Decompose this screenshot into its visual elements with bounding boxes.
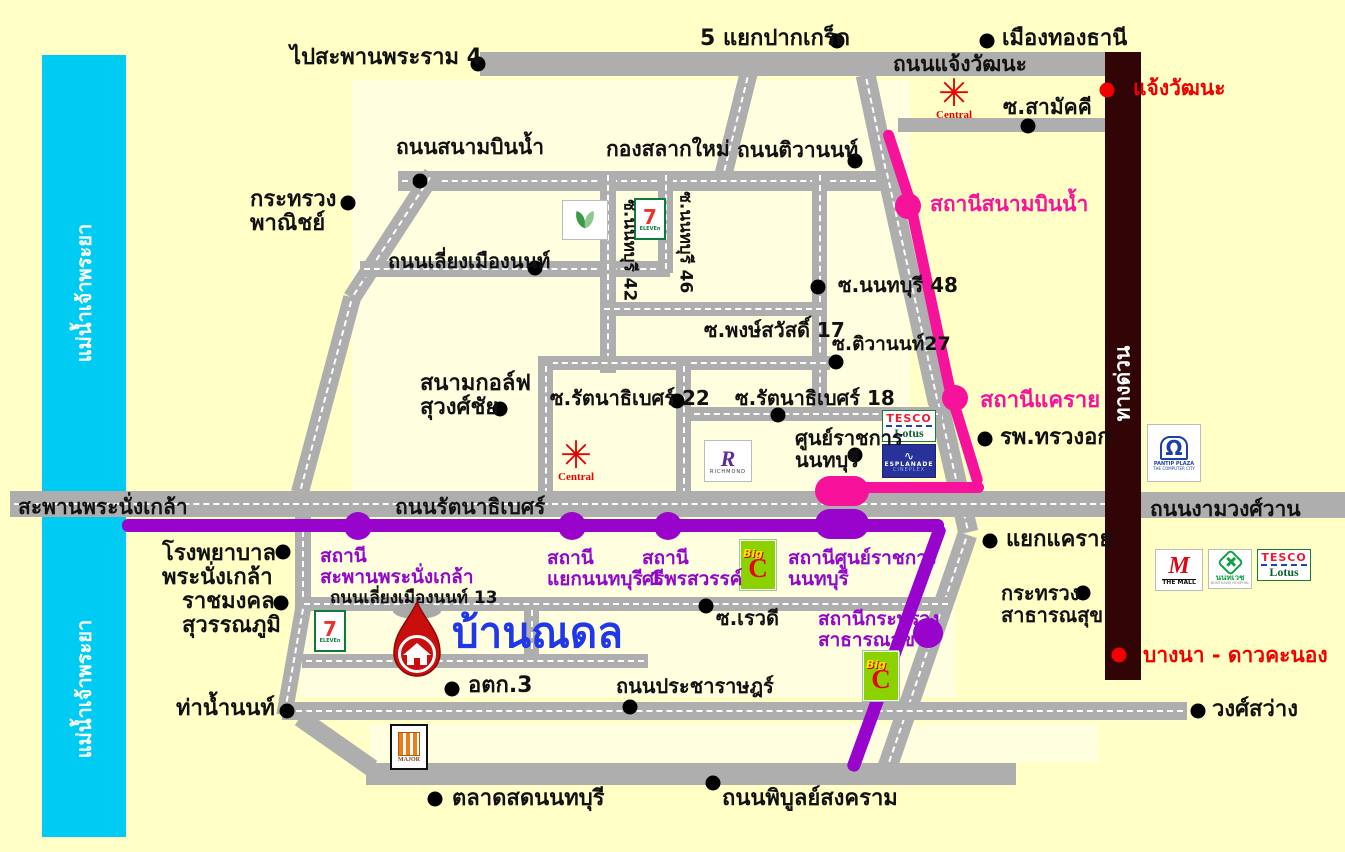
label-expressway: ทางด่วน xyxy=(1111,294,1134,474)
label-station-si-phonsawan: สถานี ศรีพรสวรรค์ xyxy=(642,548,742,590)
label-road-liangmueangnon: ถนนเลี่ยงเมืองนนท์ xyxy=(388,250,550,272)
label-road-tiwanon: ถนนติวานนท์ xyxy=(737,139,858,162)
logo-text: Central xyxy=(558,472,594,483)
poi-dot xyxy=(983,534,998,549)
road-mid-vertical-1 xyxy=(538,362,553,498)
logo-text: THE MALL xyxy=(1162,579,1196,586)
label-soi-phongsawat-17: ซ.พงษ์สวัสดิ์ 17 xyxy=(704,319,845,341)
station-khaerai xyxy=(942,385,968,411)
station-si-phonsawan xyxy=(654,512,682,540)
logo-central-icon: ✳Central xyxy=(936,76,972,121)
poi-dot xyxy=(829,355,844,370)
road-mid-vertical-2 xyxy=(676,362,691,498)
poi-dot xyxy=(413,174,428,189)
logo-text: 7 xyxy=(323,619,337,639)
logo-text: ELEVEn xyxy=(320,639,341,644)
road-centerline xyxy=(545,366,547,494)
logo-text: Lotus xyxy=(1269,566,1298,578)
logo-tesco-icon: TESCOLotus xyxy=(1257,549,1311,581)
label-chest-hospital: รพ.ทรวงอก xyxy=(1000,426,1111,450)
label-station-sanambinnam: สถานีสนามบินน้ำ xyxy=(930,193,1088,216)
logo-text: 7 xyxy=(643,207,657,227)
logo-text: Central xyxy=(936,110,972,121)
logo-text: C xyxy=(871,666,891,693)
label-soi-tiwanon-27: ซ.ติวานนท์27 xyxy=(832,334,951,355)
logo-text: C xyxy=(748,555,768,582)
logo-major-icon: MAJOR xyxy=(390,724,428,770)
road-phibun-curve xyxy=(295,710,377,775)
label-health-ministry: กระทรวง สาธารณสุข xyxy=(1001,582,1103,626)
road-soi-samakkhi xyxy=(898,118,1110,132)
logo-text: TESCO xyxy=(1261,552,1306,566)
poi-dot xyxy=(811,280,826,295)
logo-bigc-icon: BigC xyxy=(740,540,776,590)
label-station-health-ministry: สถานีกระทรวง สาธารณสุข xyxy=(818,609,939,651)
label-road-ngamwongwan: ถนนงามวงศ์วาน xyxy=(1150,498,1301,521)
logo-pantip-icon: ΩPANTIP PLAZATHE COMPUTER CITY xyxy=(1147,424,1201,482)
label-wongsawang: วงศ์สว่าง xyxy=(1212,698,1298,722)
label-chao-phraya-river-upper: แม่น้ำเจ้าพระยา xyxy=(73,203,95,383)
logo-text xyxy=(398,732,420,756)
label-road-phibunsongkhram: ถนนพิบูลย์สงคราม xyxy=(722,787,898,811)
logo-text: Ω xyxy=(1160,436,1187,460)
label-exit-changwattana: แจ้งวัฒนะ xyxy=(1133,77,1226,100)
logo-text: M xyxy=(1168,554,1189,578)
label-phranangklao-bridge: สะพานพระนั่งเกล้า xyxy=(18,496,188,519)
logo-text: TESCO xyxy=(886,413,931,427)
label-otk-3: อตก.3 xyxy=(468,674,533,698)
poi-dot xyxy=(623,700,638,715)
road-centerline xyxy=(286,710,1183,712)
label-baan-nadol: บ้านณดล xyxy=(452,610,623,656)
label-mueang-thong-thani: เมืองทองธานี xyxy=(1002,27,1127,51)
logo-text: THE COMPUTER CITY xyxy=(1153,467,1195,471)
label-golf-course: สนามกอล์ฟ สุวงศ์ชัย xyxy=(420,372,531,420)
terminal-pink-sunratchakan xyxy=(815,476,869,506)
label-road-pracharat: ถนนประชาราษฎร์ xyxy=(616,675,774,697)
label-exit-bangna-daokhanong: บางนา - ดาวคะนอง xyxy=(1143,644,1328,667)
label-pak-kret-junction: 5 แยกปากเกร็ด xyxy=(700,27,850,51)
label-road-sanambinnam: ถนนสนามบินน้ำ xyxy=(396,136,544,159)
poi-dot xyxy=(1191,704,1206,719)
poi-dot xyxy=(699,599,714,614)
road-centerline xyxy=(302,521,304,607)
station-saphan-phranangklao xyxy=(344,512,372,540)
logo-text: ✳ xyxy=(560,438,592,472)
label-road-rattanathibet: ถนนรัตนาธิเบศร์ xyxy=(395,496,545,519)
logo-nonthavej-icon: ✚นนทเวชNONTHAVEJ HOSPITAL xyxy=(1208,549,1252,589)
house-pin xyxy=(386,600,448,692)
map-canvas: ✳Central✳Central7ELEVEn7ELEVEnTESCOLotus… xyxy=(0,0,1345,852)
poi-dot xyxy=(276,545,291,560)
label-soi-nonthaburi-46: ซ.นนทบุรี 46 xyxy=(676,152,695,332)
house-pin-icon xyxy=(386,600,448,688)
road-centerline xyxy=(300,301,352,489)
label-tha-nam-non: ท่าน้ำนนท์ xyxy=(176,697,275,721)
logo-central-icon: ✳Central xyxy=(558,438,594,483)
road-phibunsongkhram xyxy=(366,763,1016,785)
poi-dot xyxy=(280,704,295,719)
poi-dot xyxy=(980,34,995,49)
label-commerce-ministry: กระทรวง พาณิชย์ xyxy=(250,188,336,236)
label-soi-nonthaburi-42: ซ.นนทบุรี 42 xyxy=(620,160,639,340)
label-kong-salak-mai: กองสลากใหม่ xyxy=(606,138,730,161)
logo-richmond-icon: RRICHMOND xyxy=(704,440,752,482)
label-soi-rattanathibet-22: ซ.รัตนาธิเบศร์ 22 xyxy=(550,387,710,409)
label-phranangklao-hospital: โรงพยาบาล พระนั่งเกล้า xyxy=(162,542,276,590)
label-yaek-khaerai: แยกแคราย xyxy=(1006,528,1112,552)
label-soi-samakkhi: ซ.สามัคคี xyxy=(1003,96,1092,119)
expressway-exit-dot xyxy=(1112,648,1127,663)
city-block xyxy=(370,724,1098,762)
station-sanambinnam xyxy=(895,193,921,219)
logo-text: NONTHAVEJ HOSPITAL xyxy=(1211,582,1250,586)
label-station-khaerai: สถานีแคราย xyxy=(980,389,1100,413)
label-gov-center-nonthaburi: ศูนย์ราชการ นนทบุรี xyxy=(795,427,903,471)
label-station-saphan-phranangklao: สถานี สะพานพระนั่งเกล้า xyxy=(320,546,474,588)
poi-dot xyxy=(1021,119,1036,134)
label-station-sunratchakan: สถานีศูนย์ราชการ นนทบุรี xyxy=(788,548,937,590)
logo-text: R xyxy=(721,448,736,470)
logo-leaf-icon xyxy=(562,200,608,240)
road-centerline xyxy=(306,660,644,662)
poi-dot xyxy=(706,776,721,791)
label-go-rama4-bridge: ไปสะพานพระราม 4 xyxy=(290,46,482,70)
leaf-icon xyxy=(573,207,597,233)
logo-text: ∿ xyxy=(904,450,914,462)
station-yaek-nonthaburi-1 xyxy=(558,512,586,540)
logo-seven-icon: 7ELEVEn xyxy=(314,610,346,652)
terminal-purple-sunratchakan xyxy=(815,509,869,539)
poi-dot xyxy=(428,792,443,807)
label-rajamangala-suvarnabhumi: ราชมงคล สุวรรณภูมิ xyxy=(182,590,281,638)
label-chao-phraya-river-lower: แม่น้ำเจ้าพระยา xyxy=(73,599,95,779)
road-pracharat-wongsawang xyxy=(282,702,1187,720)
label-soi-rewadi: ซ.เรวดี xyxy=(716,607,779,629)
label-road-changwattana: ถนนแจ้งวัฒนะ xyxy=(893,53,1027,76)
label-talat-sot-nonthaburi: ตลาดสดนนทบุรี xyxy=(452,787,605,811)
logo-text: ✳ xyxy=(938,76,970,110)
logo-text: MAJOR xyxy=(398,757,420,763)
logo-text: ELEVEn xyxy=(640,227,661,232)
poi-dot xyxy=(341,196,356,211)
poi-dot xyxy=(978,432,993,447)
label-soi-rattanathibet-18: ซ.รัตนาธิเบศร์ 18 xyxy=(735,387,895,409)
road-liangmueang-diag-2 xyxy=(291,295,361,495)
logo-themall-icon: MTHE MALL xyxy=(1155,549,1203,591)
logo-text: ✚ xyxy=(1217,549,1244,576)
logo-text: RICHMOND xyxy=(710,470,746,475)
expressway-exit-dot xyxy=(1100,83,1115,98)
label-soi-nonthaburi-48: ซ.นนทบุรี 48 xyxy=(838,274,958,296)
logo-bigc-icon: BigC xyxy=(863,651,899,701)
